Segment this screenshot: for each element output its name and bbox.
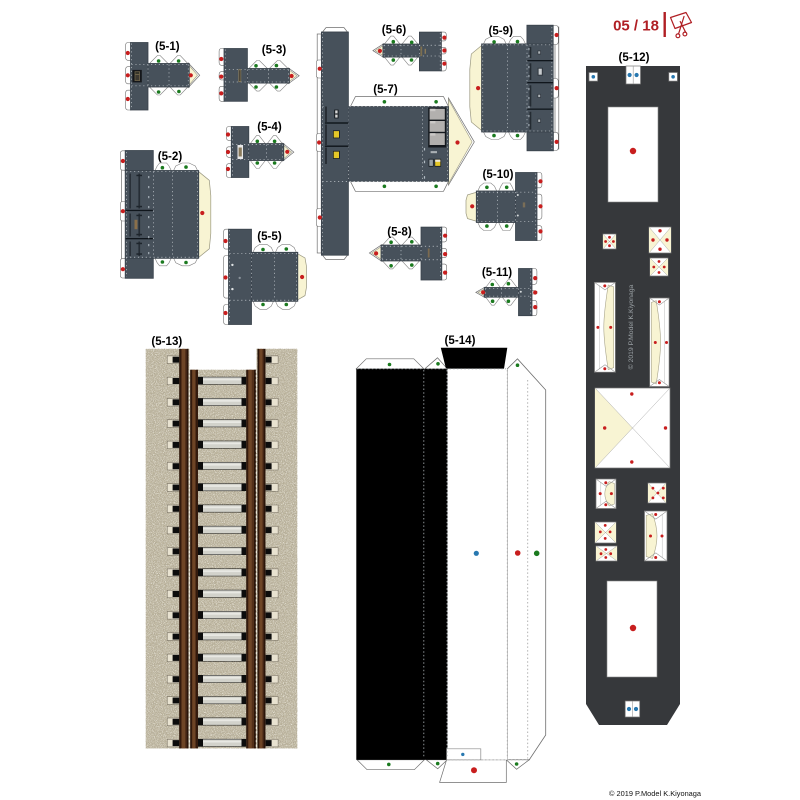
svg-text:(5-8): (5-8) — [387, 226, 412, 239]
svg-text:(5-12): (5-12) — [619, 51, 650, 64]
svg-text:(5-9): (5-9) — [488, 25, 513, 38]
svg-text:© 2019 P.Model K.Kiyonaga: © 2019 P.Model K.Kiyonaga — [609, 789, 702, 798]
svg-text:(5-11): (5-11) — [482, 266, 512, 279]
svg-text:(5-7): (5-7) — [373, 83, 398, 96]
svg-text:05 / 18: 05 / 18 — [613, 18, 659, 35]
svg-text:(5-4): (5-4) — [257, 121, 282, 134]
svg-text:(5-3): (5-3) — [262, 44, 287, 57]
svg-text:(5-14): (5-14) — [445, 334, 476, 347]
svg-text:(5-2): (5-2) — [158, 150, 183, 163]
svg-text:(5-1): (5-1) — [155, 40, 180, 53]
svg-text:(5-13): (5-13) — [151, 335, 182, 348]
svg-text:© 2019 P.Model K.Kiyonaga: © 2019 P.Model K.Kiyonaga — [627, 284, 635, 369]
svg-text:(5-6): (5-6) — [382, 24, 407, 37]
svg-text:(5-10): (5-10) — [483, 168, 514, 181]
svg-text:(5-5): (5-5) — [257, 230, 282, 243]
